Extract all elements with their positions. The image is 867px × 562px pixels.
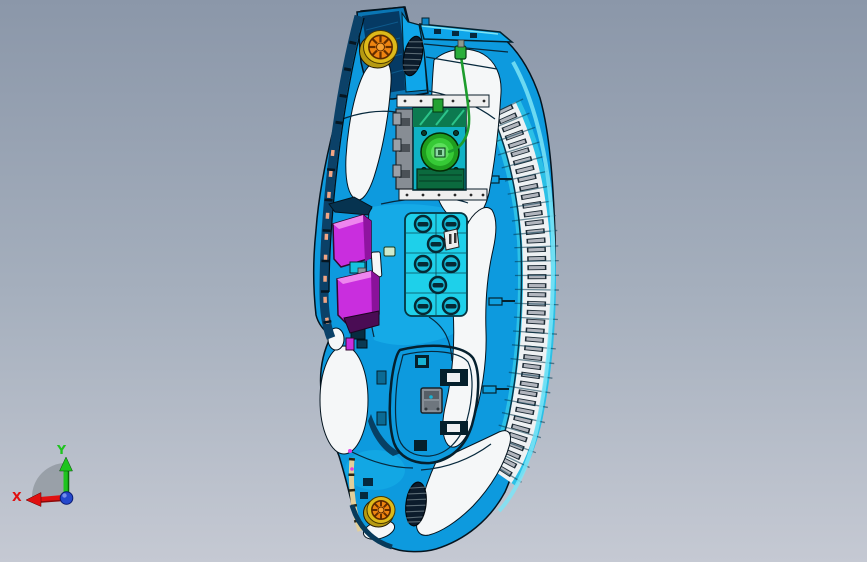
cad-viewport[interactable]: X Y: [0, 0, 867, 562]
column-connector[interactable]: [421, 388, 442, 413]
rail-clip: [470, 33, 477, 38]
mounting-boss-panel[interactable]: [405, 213, 467, 316]
column-hole: [414, 440, 427, 451]
label-chip: [384, 247, 395, 256]
actuator-base: [417, 169, 464, 189]
top-rail[interactable]: [420, 18, 512, 42]
grille-tab[interactable]: [489, 298, 502, 305]
rail-clip: [452, 31, 459, 36]
side-tab: [377, 371, 386, 384]
steering-dome-surface: [320, 346, 368, 454]
y-axis-label: Y: [56, 442, 67, 457]
cad-viewer-background: X Y: [0, 0, 867, 562]
rail-clip: [434, 29, 441, 34]
wire-connector: [455, 46, 466, 59]
z-axis-origin[interactable]: [60, 492, 73, 505]
x-axis-label: X: [12, 489, 22, 504]
hvac-duct-upper[interactable]: [333, 215, 371, 267]
orientation-triad[interactable]: X Y: [12, 442, 73, 507]
side-tab: [377, 412, 386, 425]
rail-tab: [422, 18, 429, 25]
dashboard-panel-model[interactable]: [314, 7, 555, 552]
grille-tab[interactable]: [483, 386, 496, 393]
